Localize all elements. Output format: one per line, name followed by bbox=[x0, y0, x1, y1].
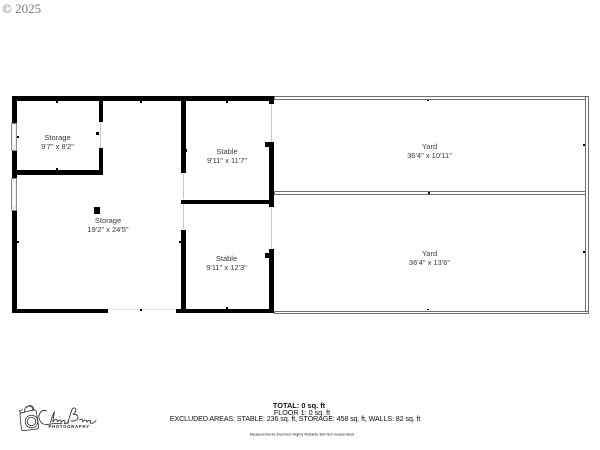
svg-text:PHOTOGRAPHY: PHOTOGRAPHY bbox=[49, 424, 90, 429]
